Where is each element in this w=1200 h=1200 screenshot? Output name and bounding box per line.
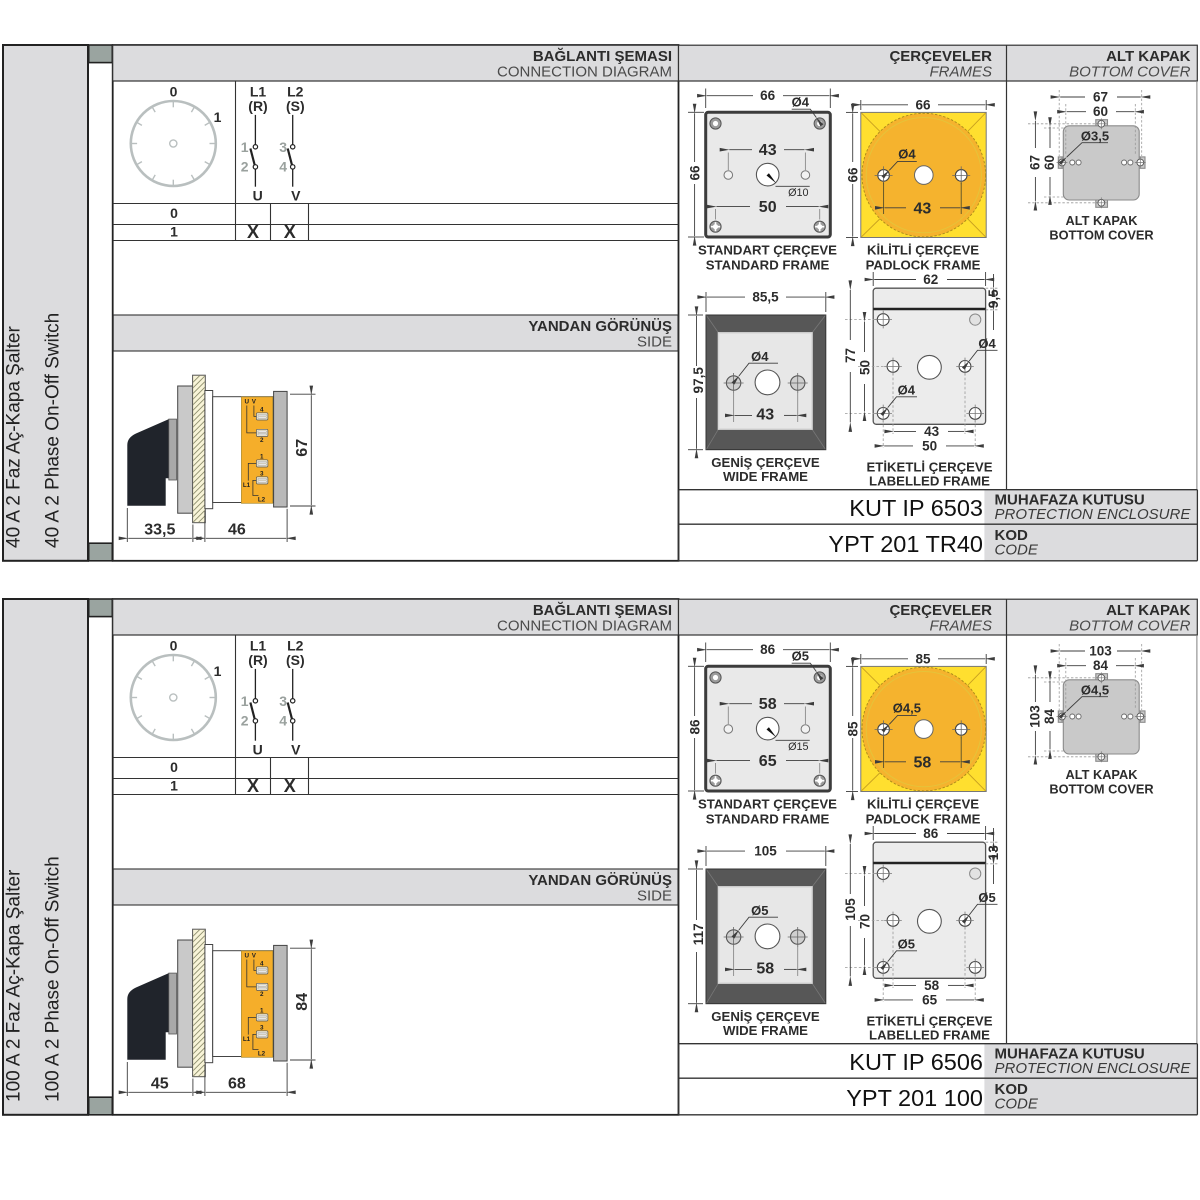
svg-text:62: 62 — [923, 271, 938, 286]
svg-text:Ø4: Ø4 — [898, 382, 916, 397]
svg-text:58: 58 — [924, 978, 940, 993]
svg-text:40 A 2 Faz Aç-Kapa Şalter: 40 A 2 Faz Aç-Kapa Şalter — [4, 325, 25, 547]
svg-text:Ø5: Ø5 — [978, 890, 995, 905]
svg-text:45: 45 — [151, 1075, 169, 1092]
svg-text:50: 50 — [922, 438, 937, 453]
svg-text:Ø3,5: Ø3,5 — [1081, 128, 1109, 143]
svg-text:60: 60 — [1093, 104, 1108, 119]
svg-text:66: 66 — [915, 97, 931, 112]
svg-text:103: 103 — [1089, 644, 1112, 659]
svg-text:Ø5: Ø5 — [792, 649, 809, 664]
svg-text:Ø4: Ø4 — [978, 335, 996, 350]
svg-text:Ø4: Ø4 — [751, 348, 769, 363]
svg-text:60: 60 — [1042, 155, 1057, 170]
svg-text:Ø10: Ø10 — [788, 187, 808, 199]
svg-text:105: 105 — [754, 844, 777, 859]
svg-text:86: 86 — [687, 719, 702, 735]
svg-text:77: 77 — [843, 348, 858, 363]
svg-text:85: 85 — [915, 651, 931, 666]
svg-text:66: 66 — [846, 167, 861, 183]
svg-text:YPT 201 TR40: YPT 201 TR40 — [828, 530, 983, 556]
svg-text:58: 58 — [914, 755, 932, 772]
svg-text:100 A 2 Phase On-Off Switch: 100 A 2 Phase On-Off Switch — [43, 856, 64, 1102]
svg-text:43: 43 — [759, 142, 777, 159]
svg-text:67: 67 — [1028, 155, 1043, 170]
svg-text:84: 84 — [1093, 658, 1109, 673]
svg-text:65: 65 — [922, 992, 938, 1007]
svg-text:13: 13 — [986, 845, 1001, 861]
svg-text:Ø15: Ø15 — [788, 741, 808, 753]
svg-text:Ø5: Ø5 — [898, 937, 915, 952]
svg-text:Ø4: Ø4 — [898, 146, 916, 161]
svg-text:66: 66 — [687, 165, 702, 181]
svg-text:50: 50 — [759, 199, 777, 216]
svg-text:100 A 2 Faz Aç-Kapa Şalter: 100 A 2 Faz Aç-Kapa Şalter — [4, 869, 25, 1102]
svg-text:40 A 2 Phase On-Off Switch: 40 A 2 Phase On-Off Switch — [43, 312, 64, 547]
svg-text:67: 67 — [1093, 89, 1108, 104]
svg-text:86: 86 — [923, 826, 939, 841]
svg-text:58: 58 — [759, 696, 777, 713]
svg-text:46: 46 — [228, 521, 246, 538]
svg-text:68: 68 — [228, 1075, 246, 1092]
svg-text:43: 43 — [924, 423, 940, 438]
svg-text:43: 43 — [914, 200, 932, 217]
svg-text:Ø4,5: Ø4,5 — [1081, 683, 1109, 698]
svg-text:58: 58 — [756, 961, 774, 978]
svg-text:9,5: 9,5 — [986, 289, 1001, 308]
svg-text:97,5: 97,5 — [691, 366, 706, 393]
svg-text:86: 86 — [760, 642, 776, 657]
svg-text:Ø4: Ø4 — [792, 94, 810, 109]
svg-text:66: 66 — [760, 88, 776, 103]
svg-text:KUT IP 6503: KUT IP 6503 — [849, 494, 983, 520]
svg-text:85,5: 85,5 — [752, 289, 779, 304]
svg-text:103: 103 — [1028, 705, 1043, 728]
svg-text:65: 65 — [759, 753, 777, 770]
svg-text:70: 70 — [857, 914, 872, 929]
svg-text:84: 84 — [1042, 709, 1057, 725]
svg-text:105: 105 — [843, 898, 858, 921]
svg-text:33,5: 33,5 — [144, 521, 175, 538]
svg-text:Ø5: Ø5 — [751, 903, 768, 918]
svg-text:117: 117 — [691, 924, 706, 946]
svg-text:50: 50 — [857, 360, 872, 375]
svg-text:Ø4,5: Ø4,5 — [893, 701, 921, 716]
svg-text:67: 67 — [294, 438, 311, 456]
svg-text:43: 43 — [756, 406, 774, 423]
svg-text:85: 85 — [846, 721, 861, 737]
svg-text:YPT 201 100: YPT 201 100 — [846, 1085, 983, 1111]
svg-text:84: 84 — [294, 993, 311, 1011]
svg-text:KUT IP 6506: KUT IP 6506 — [849, 1049, 983, 1075]
